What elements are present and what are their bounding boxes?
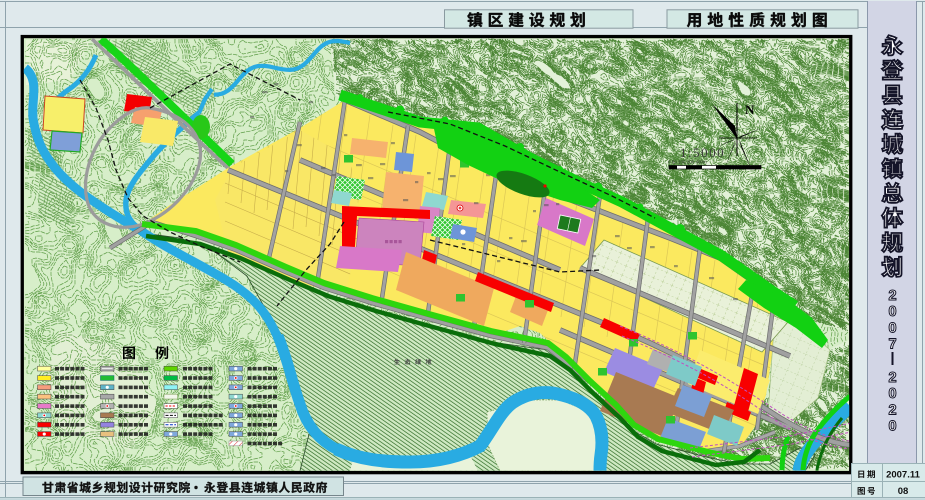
svg-text:0: 0 [888,320,896,336]
svg-text:2: 2 [888,370,896,386]
svg-text:2007.11: 2007.11 [886,470,921,481]
svg-text:0: 0 [888,304,896,320]
svg-text:0: 0 [888,419,896,435]
svg-text:N: N [745,102,755,117]
svg-text:2: 2 [888,402,896,418]
svg-text:7: 7 [888,337,896,353]
svg-text:2: 2 [888,288,896,304]
svg-text:08: 08 [898,486,909,497]
svg-text:1:5000: 1:5000 [680,145,725,160]
svg-text:0: 0 [888,386,896,402]
svg-text:0 50 100 200: 0 50 100 200 400m [668,160,707,165]
